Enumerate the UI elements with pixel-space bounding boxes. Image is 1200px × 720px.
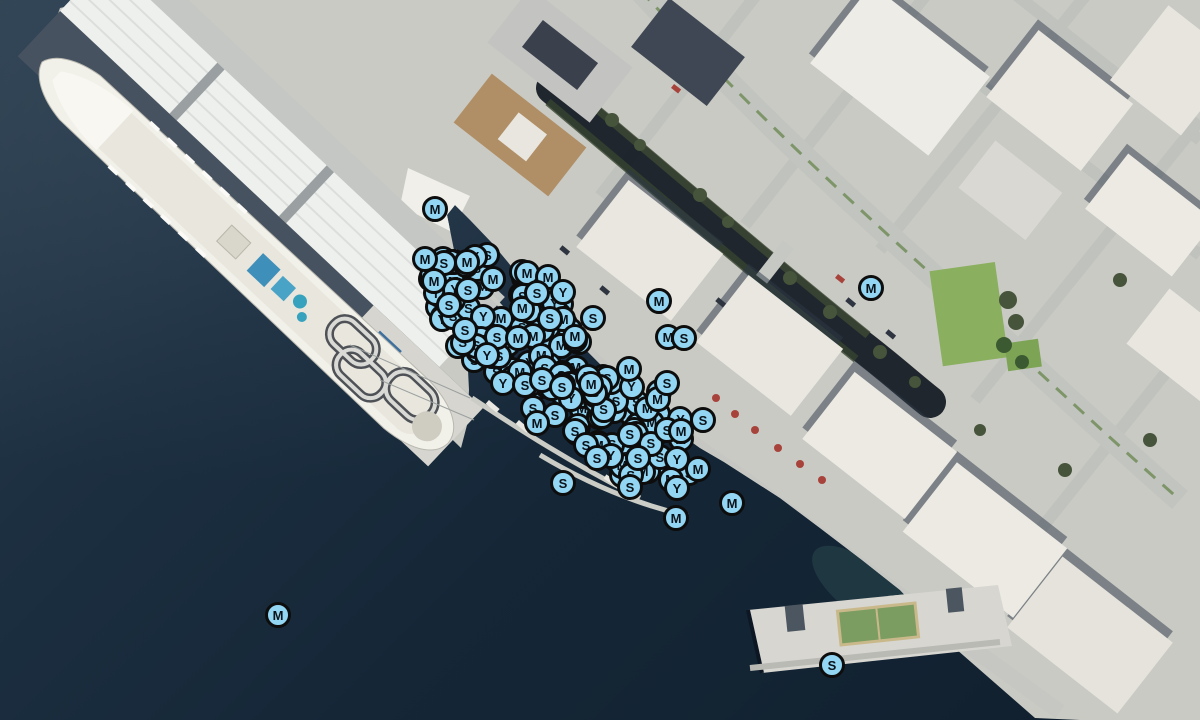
marker-letter: Y (479, 310, 488, 323)
marker-letter: S (699, 414, 708, 427)
marker-letter: Y (499, 377, 508, 390)
marker-letter: M (866, 282, 877, 295)
marker-letter: S (545, 312, 554, 325)
moorage-marker-s[interactable]: S (550, 470, 576, 496)
marker-letter: M (522, 267, 533, 280)
moorage-marker-s[interactable]: S (584, 445, 610, 471)
marker-letter: S (445, 299, 454, 312)
moorage-marker-s[interactable]: S (580, 305, 606, 331)
marker-letter: M (727, 497, 738, 510)
moorage-marker-m[interactable]: M (646, 288, 672, 314)
marker-letter: M (671, 512, 682, 525)
marker-letter: S (634, 452, 643, 465)
moorage-marker-y[interactable]: Y (550, 279, 576, 305)
moorage-marker-s[interactable]: S (436, 292, 462, 318)
moorage-marker-m[interactable]: M (663, 505, 689, 531)
marker-letter: Y (673, 453, 682, 466)
marker-letter: M (429, 275, 440, 288)
marker-letter: M (532, 417, 543, 430)
marker-letter: M (676, 425, 687, 438)
marker-letter: S (589, 312, 598, 325)
marker-letter: S (533, 287, 542, 300)
marker-letter: Y (627, 380, 636, 393)
marker-letter: M (513, 332, 524, 345)
moorage-marker-m[interactable]: M (524, 410, 550, 436)
marker-letter: M (693, 463, 704, 476)
moorage-marker-m[interactable]: M (858, 275, 884, 301)
marker-letter: S (493, 331, 502, 344)
moorage-marker-y[interactable]: Y (664, 475, 690, 501)
moorage-marker-m[interactable]: M (422, 196, 448, 222)
marker-letter: S (558, 381, 567, 394)
moorage-marker-s[interactable]: S (524, 280, 550, 306)
marker-letter: M (586, 378, 597, 391)
moorage-marker-s[interactable]: S (617, 474, 643, 500)
moorage-marker-m[interactable]: M (668, 418, 694, 444)
moorage-marker-m[interactable]: M (719, 490, 745, 516)
marker-letter: M (624, 363, 635, 376)
moorage-marker-m[interactable]: M (265, 602, 291, 628)
marker-letter: M (488, 273, 499, 286)
marker-letter: S (464, 284, 473, 297)
moorage-marker-m[interactable]: M (616, 356, 642, 382)
moorage-marker-s[interactable]: S (549, 374, 575, 400)
marker-letter: S (599, 403, 608, 416)
marker-letter: S (439, 257, 448, 270)
moorage-marker-s[interactable]: S (537, 306, 563, 332)
marker-letter: M (569, 330, 580, 343)
marker-letter: S (551, 409, 560, 422)
moorage-marker-s[interactable]: S (819, 652, 845, 678)
marker-letter: S (626, 481, 635, 494)
marker-letter: S (663, 377, 672, 390)
moorage-markers-layer: MSSSSSSYYMMSYMSMSMMSSMMMSSYSSSSSMYSMSSSM… (0, 0, 1200, 720)
marker-letter: S (559, 477, 568, 490)
moorage-marker-s[interactable]: S (671, 325, 697, 351)
marker-letter: S (625, 428, 634, 441)
moorage-marker-s[interactable]: S (625, 445, 651, 471)
moorage-marker-m[interactable]: M (454, 249, 480, 275)
marker-letter: M (462, 256, 473, 269)
moorage-marker-s[interactable]: S (452, 317, 478, 343)
moorage-marker-s[interactable]: S (617, 422, 643, 448)
marker-letter: S (828, 659, 837, 672)
marker-letter: S (538, 374, 547, 387)
moorage-marker-m[interactable]: M (421, 268, 447, 294)
marker-letter: Y (673, 482, 682, 495)
marker-letter: M (430, 203, 441, 216)
marker-letter: S (461, 324, 470, 337)
moorage-marker-m[interactable]: M (685, 456, 711, 482)
aerial-map-canvas[interactable]: MSSSSSSYYMMSYMSMSMMSSMMMSSYSSSSSMYSMSSSM… (0, 0, 1200, 720)
marker-letter: Y (483, 349, 492, 362)
moorage-marker-m[interactable]: M (480, 266, 506, 292)
marker-letter: S (647, 437, 656, 450)
marker-letter: M (654, 295, 665, 308)
marker-letter: Y (559, 286, 568, 299)
marker-letter: M (420, 253, 431, 266)
moorage-marker-m[interactable]: M (505, 325, 531, 351)
marker-letter: M (273, 609, 284, 622)
marker-letter: M (517, 302, 528, 315)
marker-letter: S (593, 452, 602, 465)
marker-letter: S (680, 332, 689, 345)
moorage-marker-y[interactable]: Y (474, 342, 500, 368)
moorage-marker-s[interactable]: S (654, 370, 680, 396)
